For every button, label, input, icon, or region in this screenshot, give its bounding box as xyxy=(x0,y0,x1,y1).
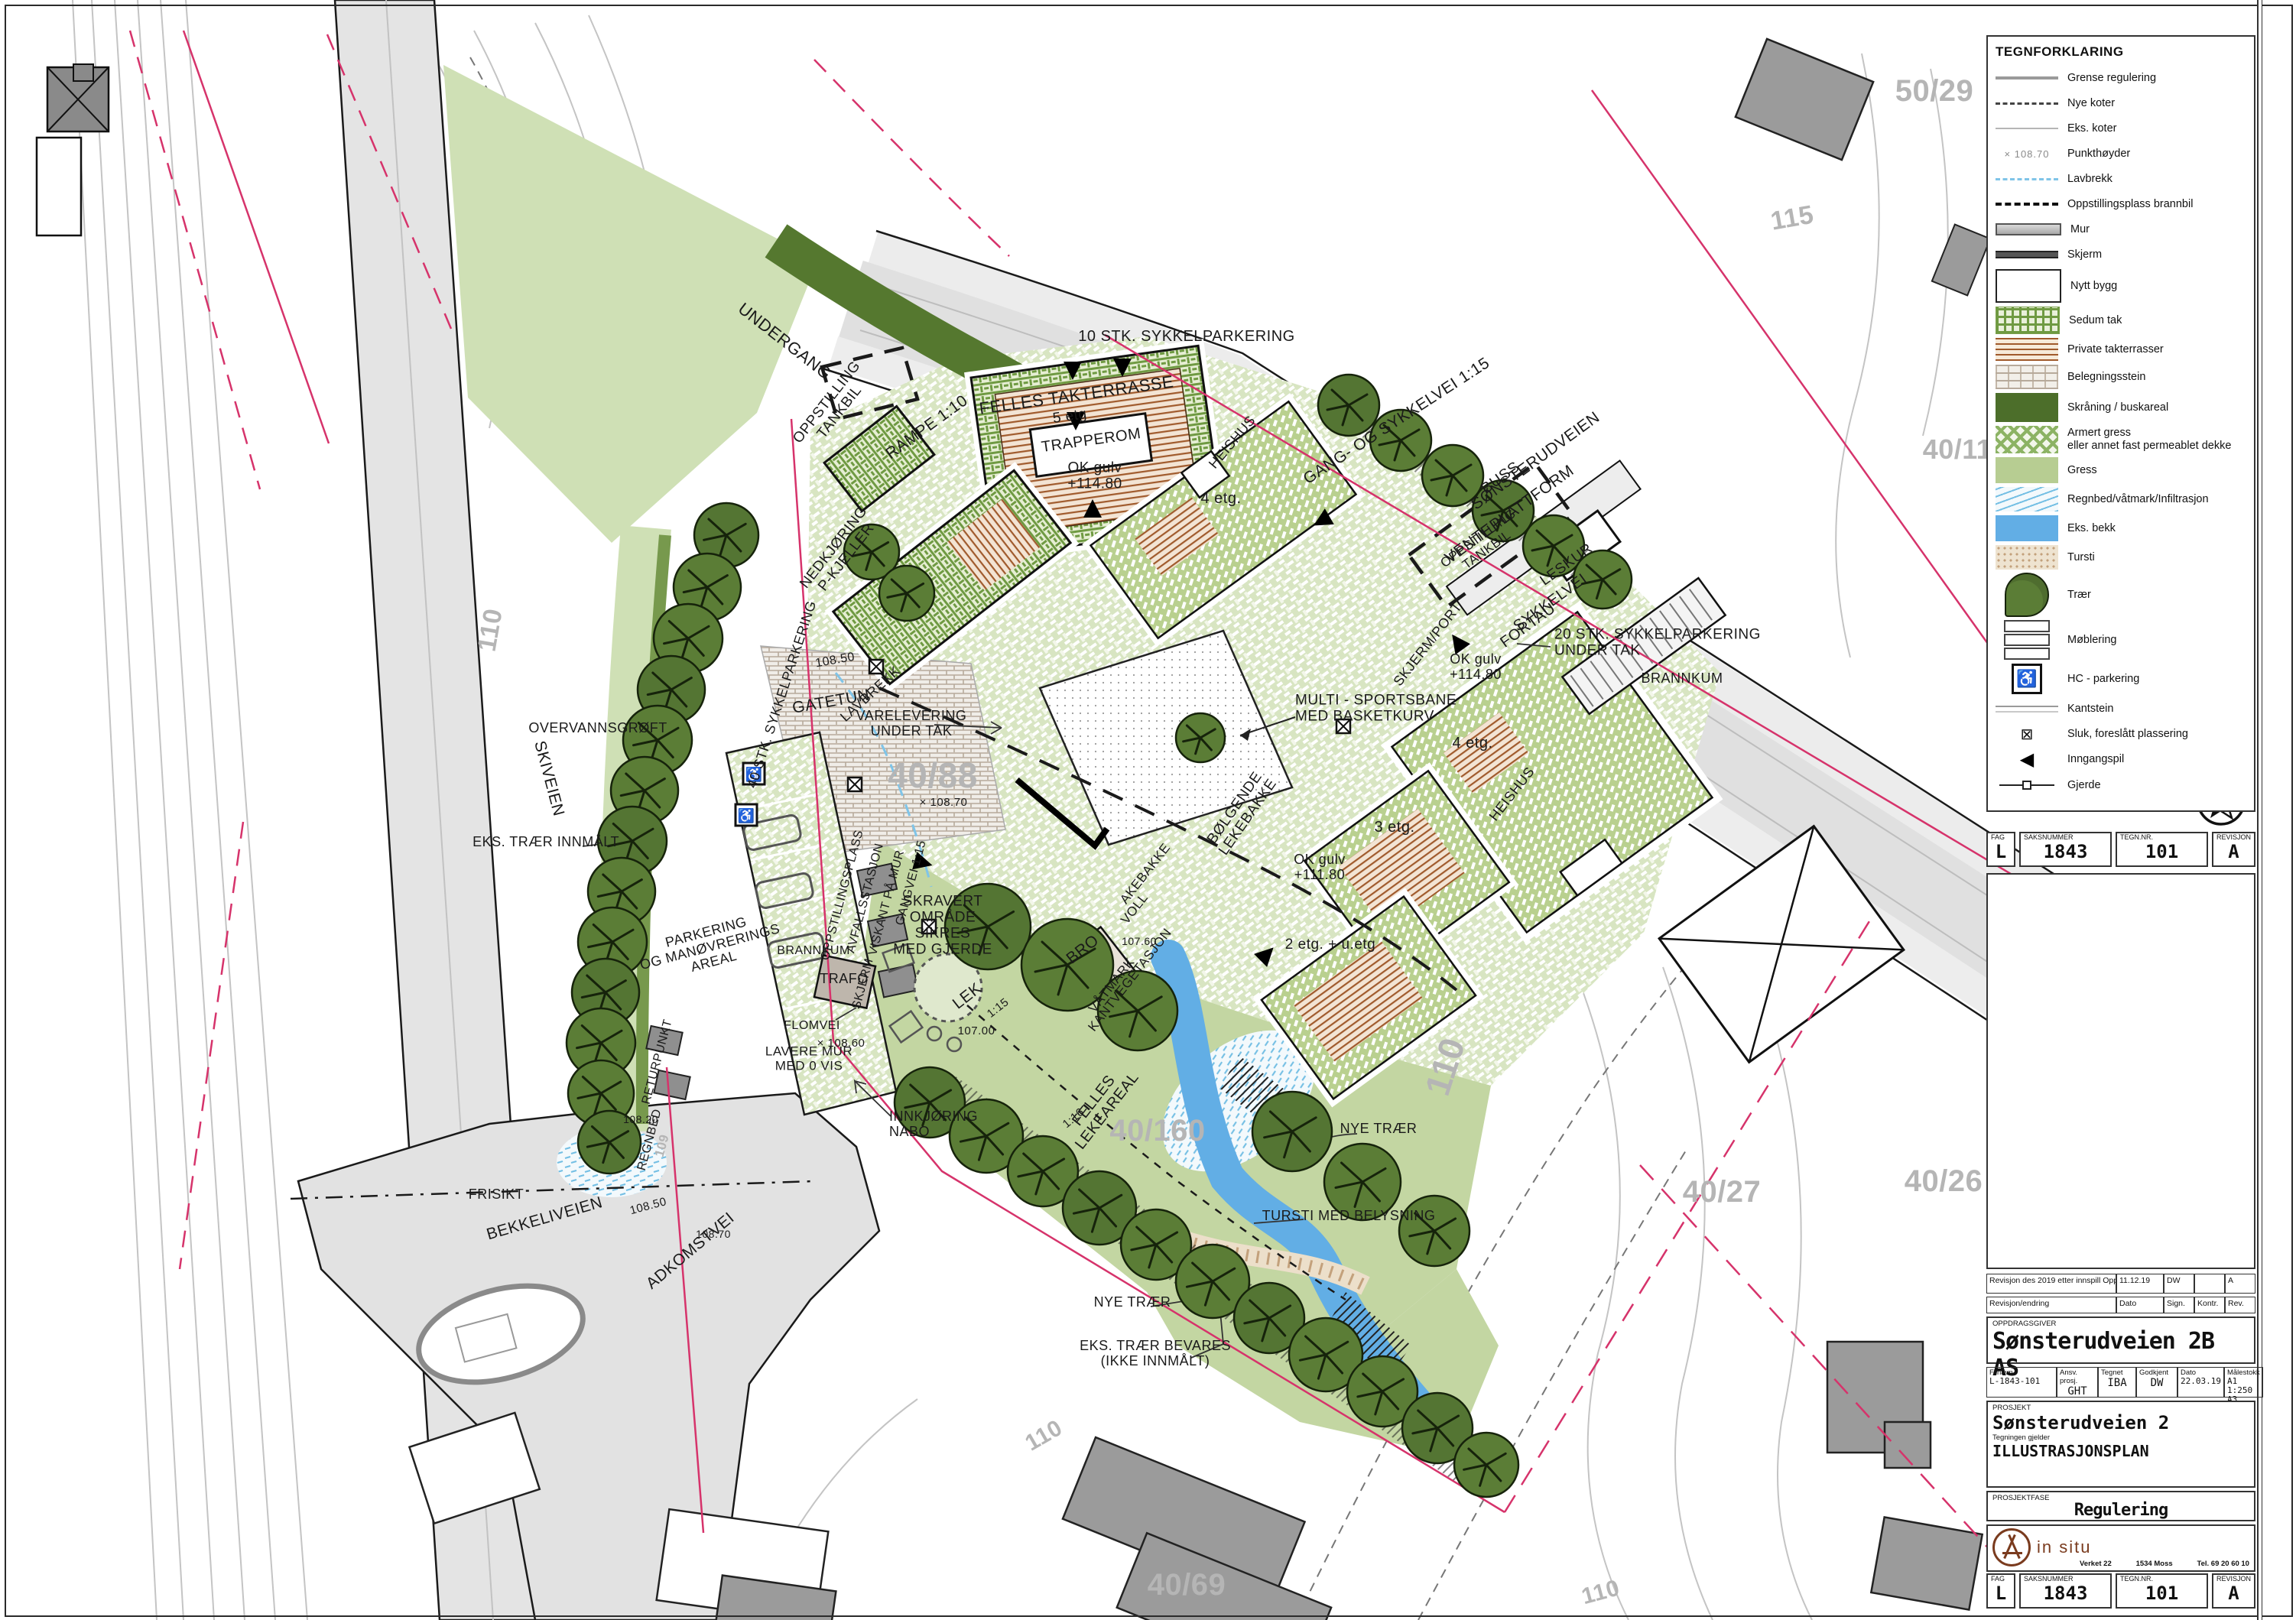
legend-label: Sedum tak xyxy=(2069,314,2122,327)
map-label: LAVERE MURMED 0 VIS xyxy=(765,1044,852,1073)
map-label: 2 etg. + u.etg xyxy=(1285,937,1375,953)
line-dash-blue-swatch-icon xyxy=(1996,178,2058,180)
legend-label: Oppstillingsplass brannbil xyxy=(2067,198,2193,211)
line-dash-dark-swatch-icon xyxy=(1996,102,2058,105)
line-gray-thin-swatch-icon xyxy=(1996,128,2058,129)
map-label: 4 etg. xyxy=(1452,735,1492,752)
house-right-1 xyxy=(1827,1342,1931,1468)
map-label: NYE TRÆR xyxy=(1340,1121,1418,1136)
gress-swatch-icon xyxy=(1996,457,2058,483)
grass-wedge-nw xyxy=(443,65,818,543)
legend-panel: TEGNFORKLARING Grense reguleringNye kote… xyxy=(1986,35,2255,812)
legend-label: Sluk, foreslått plassering xyxy=(2067,728,2188,741)
map-label: OVERVANNSGRØFT xyxy=(528,720,667,735)
id-strip-top: FAGL SAKSNUMMER1843 TEGN.NR.101 REVISJON… xyxy=(1986,832,2255,867)
tegnnr-value: 101 xyxy=(2120,841,2203,863)
house-topleft xyxy=(47,64,109,131)
legend-item: Private takterrasser xyxy=(1996,338,2246,361)
map-label: FRISIKT xyxy=(469,1187,524,1202)
legend-item: Belegningsstein xyxy=(1996,365,2246,389)
map-label: 40/11 xyxy=(1923,433,1992,465)
map-label: OK gulv+114.80 xyxy=(1450,651,1502,682)
map-label: BRANNKUM xyxy=(1641,670,1723,686)
map-label: TURSTI MED BELYSNING xyxy=(1262,1208,1436,1223)
line-dash-black-swatch-icon xyxy=(1996,203,2058,206)
legend-item: Eks. koter xyxy=(1996,118,2246,139)
legend-item: Kantstein xyxy=(1996,698,2246,719)
tree xyxy=(1399,1196,1470,1266)
legend-item: ◀Inngangspil xyxy=(1996,748,2246,771)
map-label: 108.70 xyxy=(696,1228,731,1240)
legend-item: Møblering xyxy=(1996,620,2246,660)
line-gray-thick-swatch-icon xyxy=(1996,76,2058,80)
legend-item: Skråning / buskareal xyxy=(1996,393,2246,422)
file-info-row: FilnavnL-1843-101 Ansv. prosj.GHT Tegnet… xyxy=(1986,1367,2255,1398)
drawing-sheet: N ♿ ♿ UNDERGANGOPPSTILLINGTANKBILRAMPE 1… xyxy=(0,0,2296,1620)
map-label: 108.20 xyxy=(623,1113,658,1125)
legend-label: HC - parkering xyxy=(2067,673,2139,686)
bekk-swatch-icon xyxy=(1996,515,2058,541)
legend-label: Skjerm xyxy=(2067,248,2102,261)
tree xyxy=(1176,713,1225,762)
legend-item: Gress xyxy=(1996,457,2246,483)
legend-item: ⊠Sluk, foreslått plassering xyxy=(1996,723,2246,745)
legend-label: Skråning / buskareal xyxy=(2067,401,2168,414)
tree xyxy=(1252,1092,1332,1171)
sluk-swatch-icon: ⊠ xyxy=(1996,725,2058,744)
map-label: 10 STK. SYKKELPARKERING xyxy=(1078,328,1294,345)
site-plan-canvas: N ♿ ♿ UNDERGANGOPPSTILLINGTANKBILRAMPE 1… xyxy=(0,0,2296,1620)
legend-label: Trær xyxy=(2067,589,2091,602)
map-label: VARELEVERINGUNDER TAK xyxy=(856,708,967,739)
map-label: 3 etg. xyxy=(1374,819,1414,836)
nyttbygg-swatch-icon xyxy=(1996,269,2061,303)
legend-item: × 108.70Punkthøyder xyxy=(1996,143,2246,164)
map-label: 40/26 xyxy=(1905,1164,1983,1198)
sedum-swatch-icon xyxy=(1996,307,2060,334)
legend-label: Nye koter xyxy=(2067,97,2115,110)
skraning-swatch-icon xyxy=(1996,393,2058,422)
legend-label: Inngangspil xyxy=(2067,753,2124,766)
legend-item: Skjerm xyxy=(1996,244,2246,265)
map-label: 40/69 xyxy=(1148,1568,1226,1602)
legend-label: Punkthøyder xyxy=(2067,148,2130,161)
legend-label: Grense regulering xyxy=(2067,72,2156,85)
legend-label: Møblering xyxy=(2067,634,2116,647)
project-box: PROSJEKT Sønsterudveien 2 Tegningen gjel… xyxy=(1986,1401,2255,1488)
gjerde-swatch-icon xyxy=(1996,781,2058,790)
sluk-icon xyxy=(848,778,862,791)
map-label: EKS. TRÆR BEVARES(IKKE INNMÅLT) xyxy=(1080,1338,1231,1368)
legend-item: Grense regulering xyxy=(1996,67,2246,89)
building-left-white xyxy=(37,138,81,235)
traer-swatch-icon xyxy=(1996,573,2058,616)
legend-item: Tursti xyxy=(1996,545,2246,570)
legend-label: Private takterrasser xyxy=(2067,343,2164,356)
firm-name: in situ xyxy=(2037,1537,2091,1557)
tree xyxy=(879,566,934,621)
legend-label: Mur xyxy=(2070,223,2090,236)
tursti-swatch-icon xyxy=(1996,545,2058,570)
saksnummer-value: 1843 xyxy=(2024,841,2107,863)
map-label: 107.00 xyxy=(958,1024,995,1037)
map-label: 115 xyxy=(1768,200,1816,236)
legend-item: Gjerde xyxy=(1996,774,2246,796)
map-label: 50/29 xyxy=(1895,74,1974,108)
legend-item: Regnbed/våtmark/Infiltrasjon xyxy=(1996,487,2246,511)
belegning-swatch-icon xyxy=(1996,365,2058,389)
legend-label: Eks. koter xyxy=(2067,122,2116,135)
map-label: × 108.70 xyxy=(920,796,968,809)
fag-value: L xyxy=(1991,841,2011,863)
legend-item: ♿HC - parkering xyxy=(1996,664,2246,694)
inngangspil-swatch-icon: ◀ xyxy=(1996,748,2058,771)
legend-label: Nytt bygg xyxy=(2070,280,2117,293)
hc-swatch-icon: ♿ xyxy=(1996,664,2058,694)
skjerm-swatch-icon xyxy=(1996,251,2058,258)
tree xyxy=(1454,1433,1518,1497)
insitu-logo-icon xyxy=(1992,1528,2031,1566)
legend-item: Trær xyxy=(1996,573,2246,616)
map-label: 107.60 xyxy=(1122,935,1157,947)
id-strip-bottom: FAGL SAKSNUMMER1843 TEGN.NR.101 REVISJON… xyxy=(1986,1573,2255,1609)
map-label: 4 etg. xyxy=(1200,490,1241,507)
legend-label: Gress xyxy=(2067,464,2097,477)
legend-items: Grense reguleringNye koterEks. koter× 10… xyxy=(1996,67,2246,796)
legend-item: Armert gress eller annet fast permeablet… xyxy=(1996,426,2246,453)
legend-item: Sedum tak xyxy=(1996,307,2246,334)
map-label: OK gulv+114.80 xyxy=(1067,460,1122,492)
legend-item: Nye koter xyxy=(1996,93,2246,114)
tree xyxy=(1318,375,1379,436)
legend-item: Eks. bekk xyxy=(1996,515,2246,541)
map-label: 110 xyxy=(473,606,508,654)
punkt-swatch-icon: × 108.70 xyxy=(1996,148,2058,160)
revision-entry-row: Revisjon des 2019 etter innspill Oppegår… xyxy=(1986,1274,2255,1294)
legend-label: Kantstein xyxy=(2067,703,2113,716)
map-label: 40/88 xyxy=(888,755,978,795)
sluk-icon xyxy=(869,660,883,674)
map-label: MULTI - SPORTSBANEMED BASKETKURV xyxy=(1295,693,1457,725)
svg-text:♿: ♿ xyxy=(738,807,755,823)
map-label: 40/160 xyxy=(1109,1114,1205,1148)
drawing-title: ILLUSTRASJONSPLAN xyxy=(1992,1442,2149,1460)
revisjon-value: A xyxy=(2216,841,2251,863)
client-box: OPPDRAGSGIVER Sønsterudveien 2B AS xyxy=(1986,1316,2255,1364)
legend-label: Regnbed/våtmark/Infiltrasjon xyxy=(2067,493,2209,506)
firm-box: in situ Verket 221534 MossTel. 69 20 60 … xyxy=(1986,1524,2255,1572)
legend-item: Nytt bygg xyxy=(1996,269,2246,303)
kantstein-swatch-icon xyxy=(1996,706,2058,713)
legend-item: Oppstillingsplass brannbil xyxy=(1996,193,2246,215)
map-label: 40/27 xyxy=(1683,1175,1762,1209)
legend-item: Mur xyxy=(1996,219,2246,240)
legend-label: Lavbrekk xyxy=(2067,173,2113,186)
phase-box: PROSJEKTFASE Regulering xyxy=(1986,1491,2255,1521)
phase-value: Regulering xyxy=(1992,1501,2249,1520)
legend-title: TEGNFORKLARING xyxy=(1996,44,2246,60)
armert-swatch-icon xyxy=(1996,426,2058,453)
map-label: BRANNKUM xyxy=(777,944,850,957)
moblering-swatch-icon xyxy=(1996,620,2058,660)
legend-label: Eks. bekk xyxy=(2067,522,2116,535)
terrasse-swatch-icon xyxy=(1996,338,2058,361)
map-label: EKS. TRÆR INNMÅLT xyxy=(473,834,619,849)
legend-item: Lavbrekk xyxy=(1996,168,2246,190)
map-label: SKIVEIEN xyxy=(531,739,567,818)
map-label: NYE TRÆR xyxy=(1094,1294,1171,1310)
map-label: OK gulv+111.80 xyxy=(1294,852,1346,882)
legend-label: Belegningsstein xyxy=(2067,371,2145,384)
legend-label: Tursti xyxy=(2067,551,2095,564)
map-label: FLOMVEI xyxy=(784,1019,840,1032)
legend-label: Gjerde xyxy=(2067,779,2101,792)
firm-address: Verket 221534 MossTel. 69 20 60 10 xyxy=(2080,1560,2249,1568)
project-name: Sønsterudveien 2 xyxy=(1992,1412,2169,1433)
notes-box xyxy=(1986,873,2255,1269)
regnbed-swatch-icon xyxy=(1996,487,2058,511)
map-label: 110 xyxy=(1021,1415,1067,1456)
mur-swatch-icon xyxy=(1996,223,2061,235)
legend-label: Armert gress eller annet fast permeablet… xyxy=(2067,427,2231,452)
map-label: 110 xyxy=(1579,1575,1622,1609)
revision-header-row: Revisjon/endring Dato Sign. Kontr. Rev. xyxy=(1986,1297,2255,1313)
